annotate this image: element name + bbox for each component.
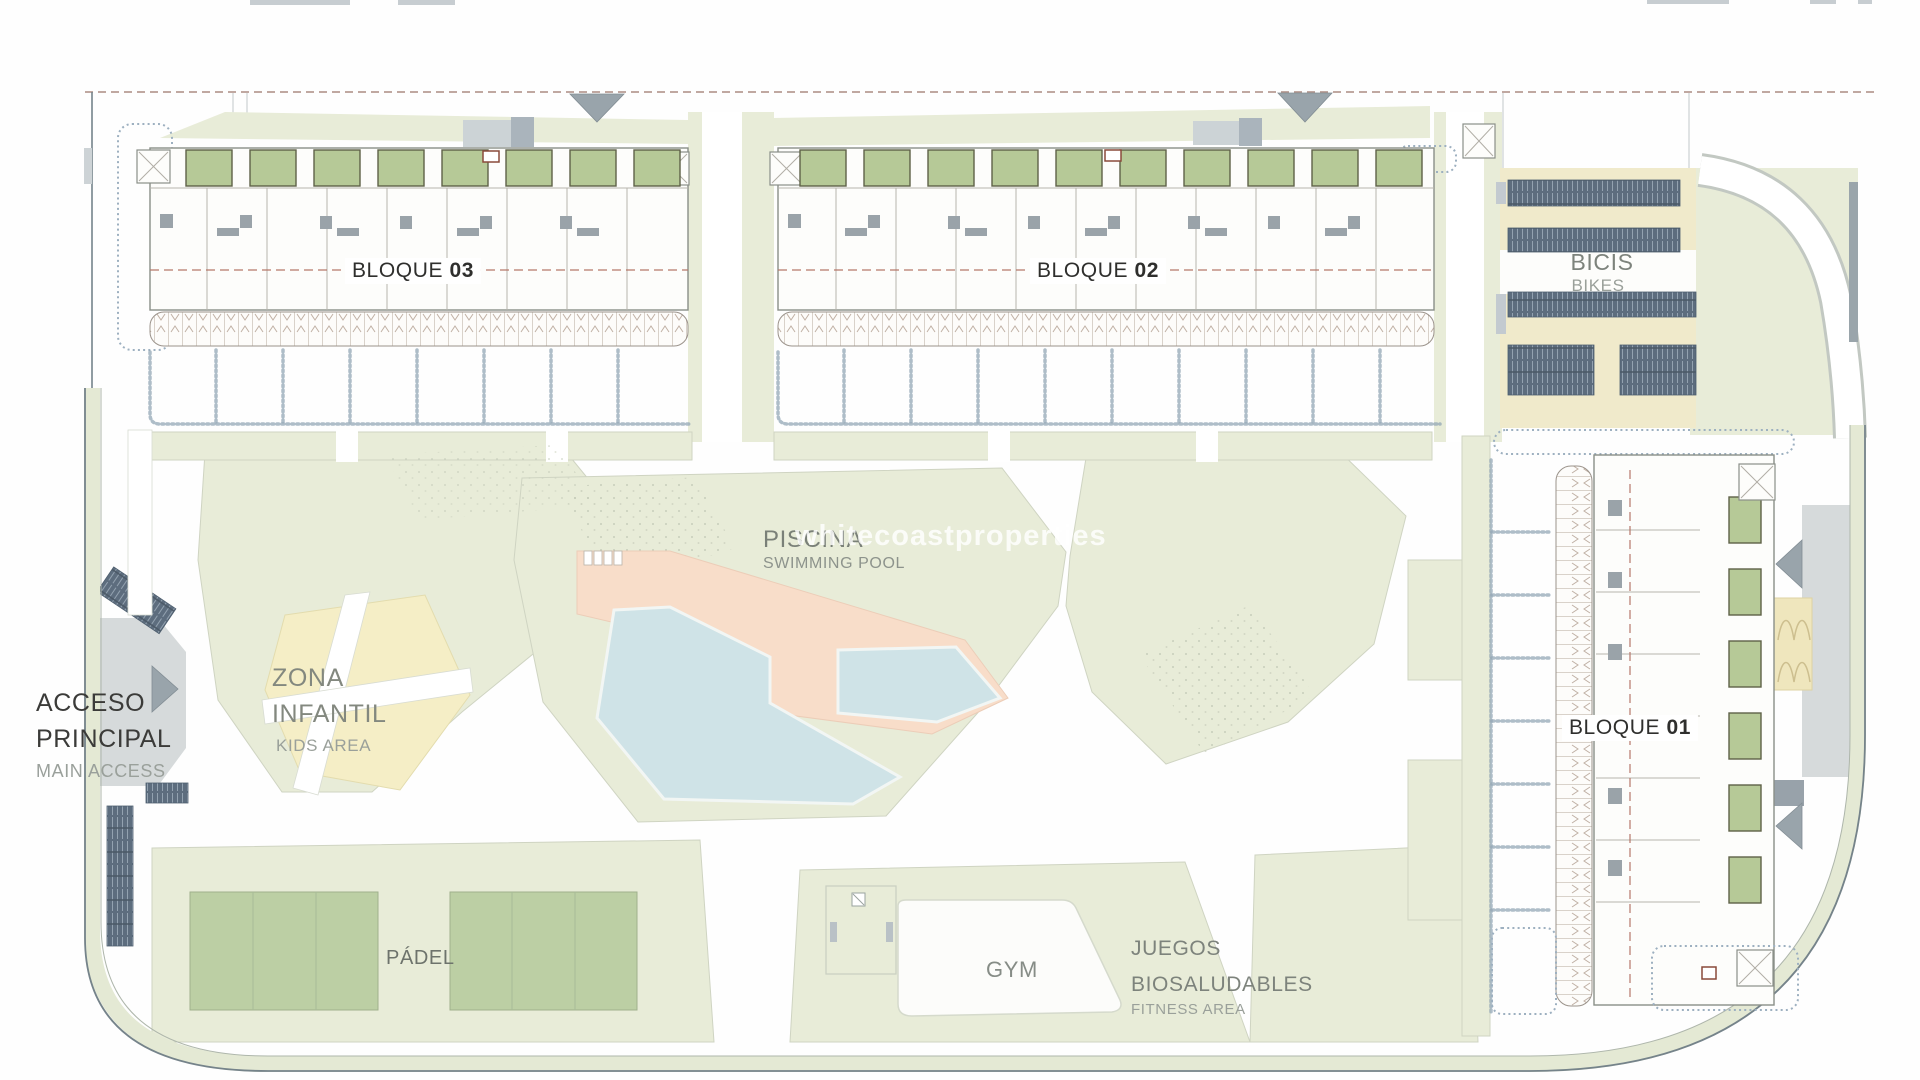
watermark: whitecoastproperties [795,520,1107,553]
site-plan: BLOQUE 03 BLOQUE 02 BLOQUE 01 BICIS BIKE… [0,0,1920,1080]
